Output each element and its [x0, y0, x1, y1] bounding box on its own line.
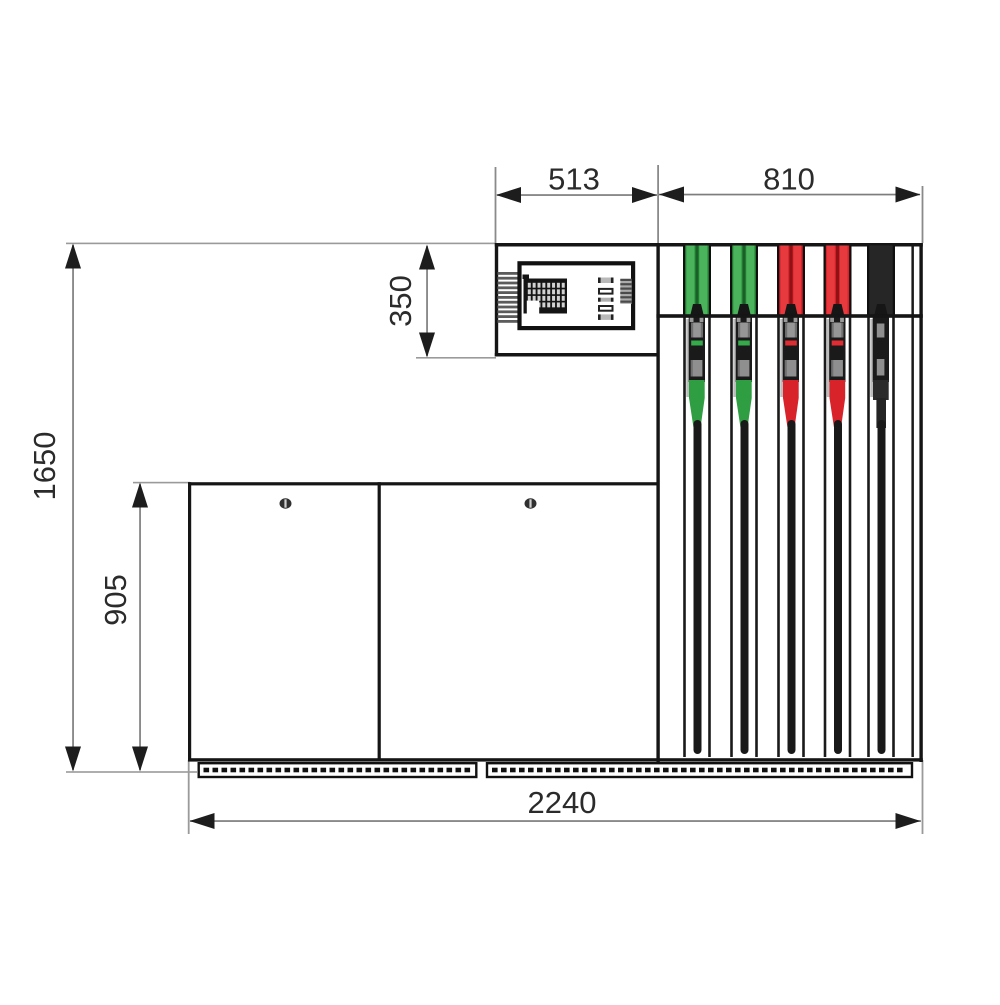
svg-text:2240: 2240 [528, 785, 597, 820]
svg-text:350: 350 [383, 275, 418, 327]
svg-text:905: 905 [98, 574, 133, 626]
svg-text:1650: 1650 [27, 432, 62, 501]
svg-text:513: 513 [548, 162, 600, 197]
svg-text:810: 810 [763, 162, 815, 197]
